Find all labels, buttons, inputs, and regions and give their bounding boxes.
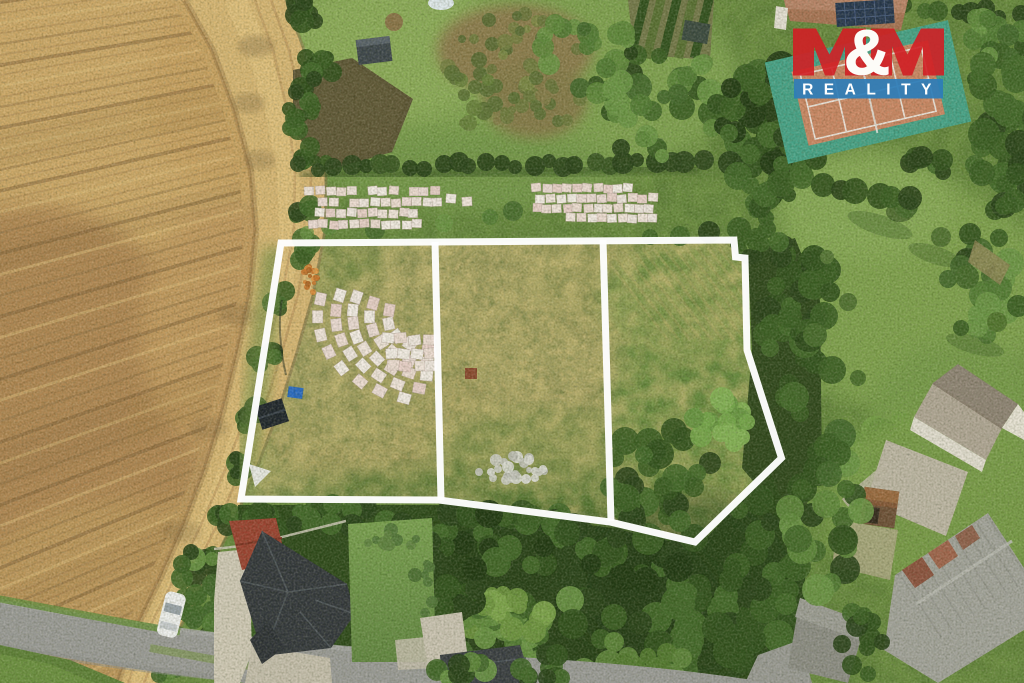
svg-text:&: & <box>844 18 890 88</box>
svg-text:REALITY: REALITY <box>802 82 942 99</box>
